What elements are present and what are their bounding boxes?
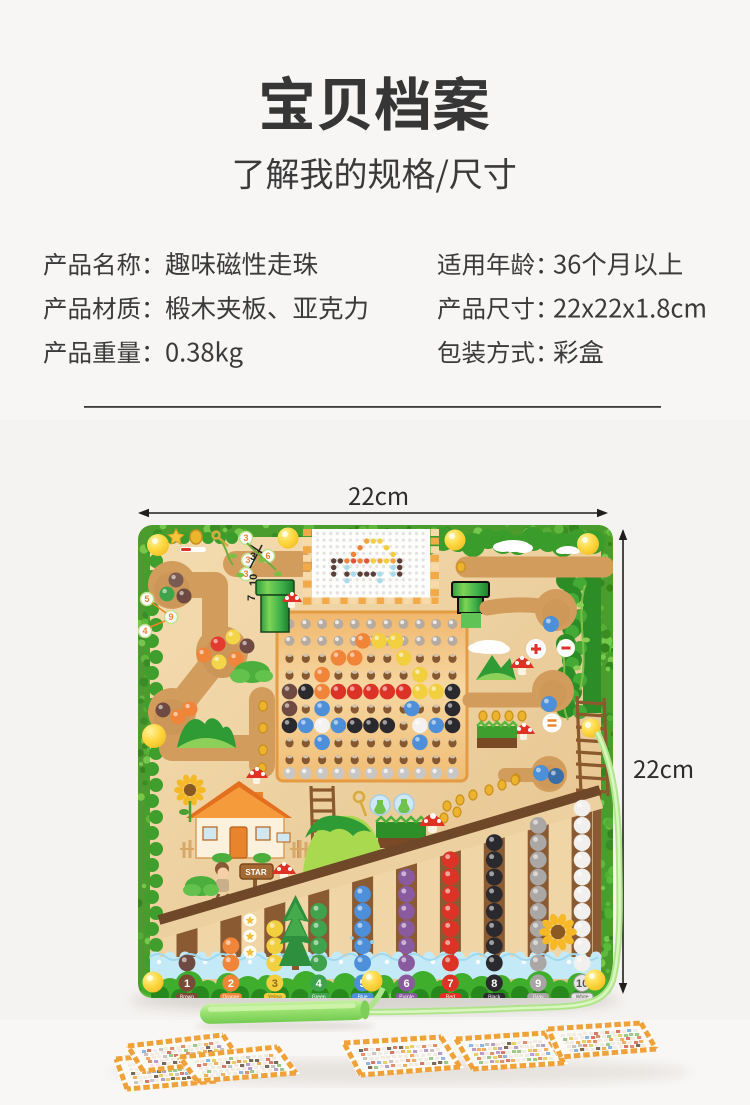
svg-text:3: 3 xyxy=(250,551,256,563)
svg-text:2: 2 xyxy=(228,978,234,990)
svg-text:9: 9 xyxy=(168,612,173,622)
svg-text:6: 6 xyxy=(265,551,270,561)
svg-text:3: 3 xyxy=(272,978,278,990)
svg-text:5: 5 xyxy=(144,594,149,604)
svg-text:STAR: STAR xyxy=(245,868,266,877)
svg-text:6: 6 xyxy=(403,978,409,990)
svg-text:7: 7 xyxy=(246,595,258,601)
svg-text:9: 9 xyxy=(535,978,541,990)
svg-text:7: 7 xyxy=(447,978,453,990)
svg-text:8: 8 xyxy=(491,978,497,990)
svg-text:1: 1 xyxy=(184,978,190,990)
svg-text:4: 4 xyxy=(316,978,323,990)
svg-text:4: 4 xyxy=(142,626,147,636)
svg-text:3: 3 xyxy=(243,533,248,543)
